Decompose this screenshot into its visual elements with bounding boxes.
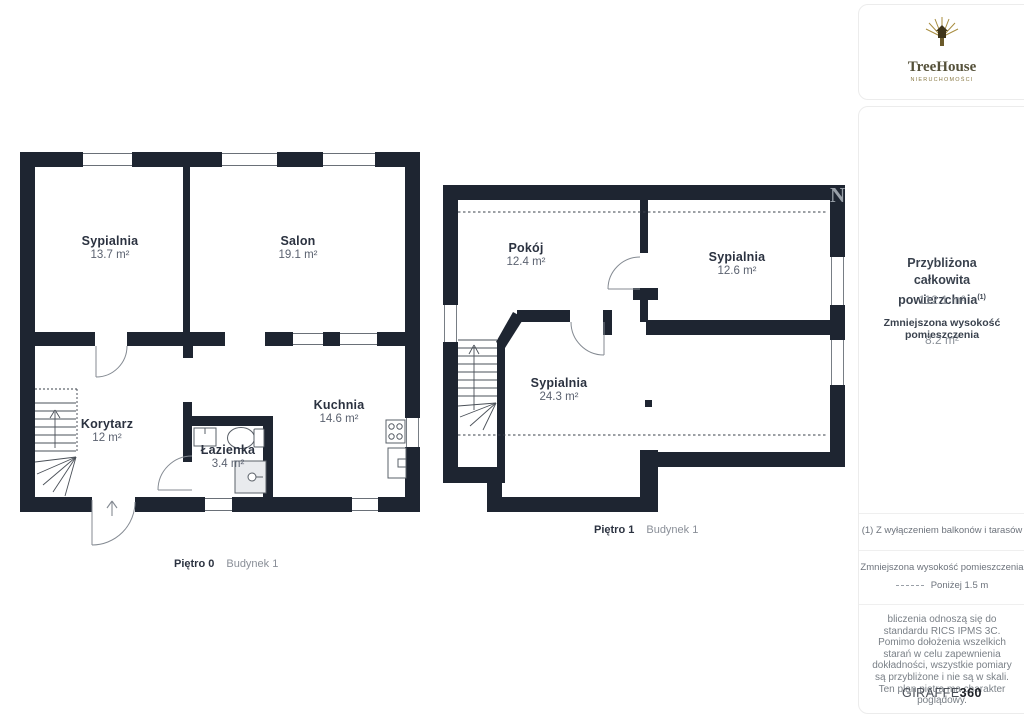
stairs-icon-floor0: [35, 389, 77, 496]
dashed-line-icon: [896, 585, 924, 586]
kitchen-sink-icon: [388, 448, 406, 478]
floorplan-page: { "watermark": "N", "plans": [ { "captio…: [0, 0, 1024, 724]
column-marker: [645, 400, 652, 407]
room-label-kuchnia: Kuchnia 14.6 m²: [314, 398, 365, 425]
room-area: 24.3 m²: [531, 391, 588, 403]
room-name: Korytarz: [81, 417, 133, 431]
room-label-sypialnia-f1a: Sypialnia 12.6 m²: [709, 250, 766, 277]
room-area: 13.7 m²: [82, 249, 139, 261]
legend-value: Poniżej 1.5 m: [931, 580, 989, 591]
building-label: Budynek 1: [226, 558, 278, 570]
stairs-icon-floor1: [458, 340, 497, 430]
floor-plans-drawing: [0, 0, 860, 724]
reduced-height-value: 8.2 m²: [859, 333, 1024, 347]
room-name: Kuchnia: [314, 398, 365, 412]
divider: [859, 513, 1024, 514]
caption-floor0: Piętro 0Budynek 1: [174, 558, 278, 570]
brand-subtitle: NIERUCHOMOŚCI: [859, 77, 1024, 83]
room-area: 12 m²: [81, 432, 133, 444]
room-label-pokoj: Pokój 12.4 m²: [507, 241, 546, 268]
kitchen-fixtures: [386, 420, 406, 478]
room-label-salon: Salon 19.1 m²: [279, 234, 318, 261]
summary-card: Przybliżona całkowita powierzchnia(1) 11…: [858, 106, 1024, 714]
legend-row: Poniżej 1.5 m: [859, 580, 1024, 591]
floor-label: Piętro 1: [594, 524, 634, 536]
stove-icon: [386, 420, 405, 443]
caption-floor1: Piętro 1Budynek 1: [594, 524, 698, 536]
building-label: Budynek 1: [646, 524, 698, 536]
legend-label: Zmniejszona wysokość pomieszczenia: [859, 562, 1024, 573]
tree-icon: [919, 15, 965, 53]
footnote-text: (1) Z wyłączeniem balkonów i tarasów: [859, 525, 1024, 536]
room-label-sypialnia-f1b: Sypialnia 24.3 m²: [531, 376, 588, 403]
room-name: Sypialnia: [531, 376, 588, 390]
room-name: Łazienka: [201, 443, 255, 457]
giraffe-text: GIRAFFE: [902, 686, 960, 700]
logo-card: TreeHouse NIERUCHOMOŚCI: [858, 4, 1024, 100]
room-area: 14.6 m²: [314, 413, 365, 425]
room-name: Sypialnia: [82, 234, 139, 248]
room-label-korytarz: Korytarz 12 m²: [81, 417, 133, 444]
walls-floor1: [443, 185, 845, 512]
divider: [859, 550, 1024, 551]
room-area: 19.1 m²: [279, 249, 318, 261]
agency-logo: TreeHouse NIERUCHOMOŚCI: [859, 15, 1024, 83]
room-area: 3.4 m²: [201, 458, 255, 470]
divider: [859, 604, 1024, 605]
total-area-value: 112.1 m²: [859, 293, 1024, 307]
entrance-arrow-icon: [107, 501, 117, 516]
giraffe-360-text: 360: [960, 686, 982, 700]
room-label-sypialnia-f0: Sypialnia 13.7 m²: [82, 234, 139, 261]
giraffe360-logo: GIRAFFE360: [859, 686, 1024, 700]
room-label-lazienka: Łazienka 3.4 m²: [201, 443, 255, 470]
room-area: 12.6 m²: [709, 265, 766, 277]
watermark-n: N: [830, 183, 845, 208]
floor-label: Piętro 0: [174, 558, 214, 570]
room-name: Salon: [279, 234, 318, 248]
room-name: Sypialnia: [709, 250, 766, 264]
brand-name: TreeHouse: [859, 59, 1024, 76]
room-area: 12.4 m²: [507, 256, 546, 268]
room-name: Pokój: [507, 241, 546, 255]
